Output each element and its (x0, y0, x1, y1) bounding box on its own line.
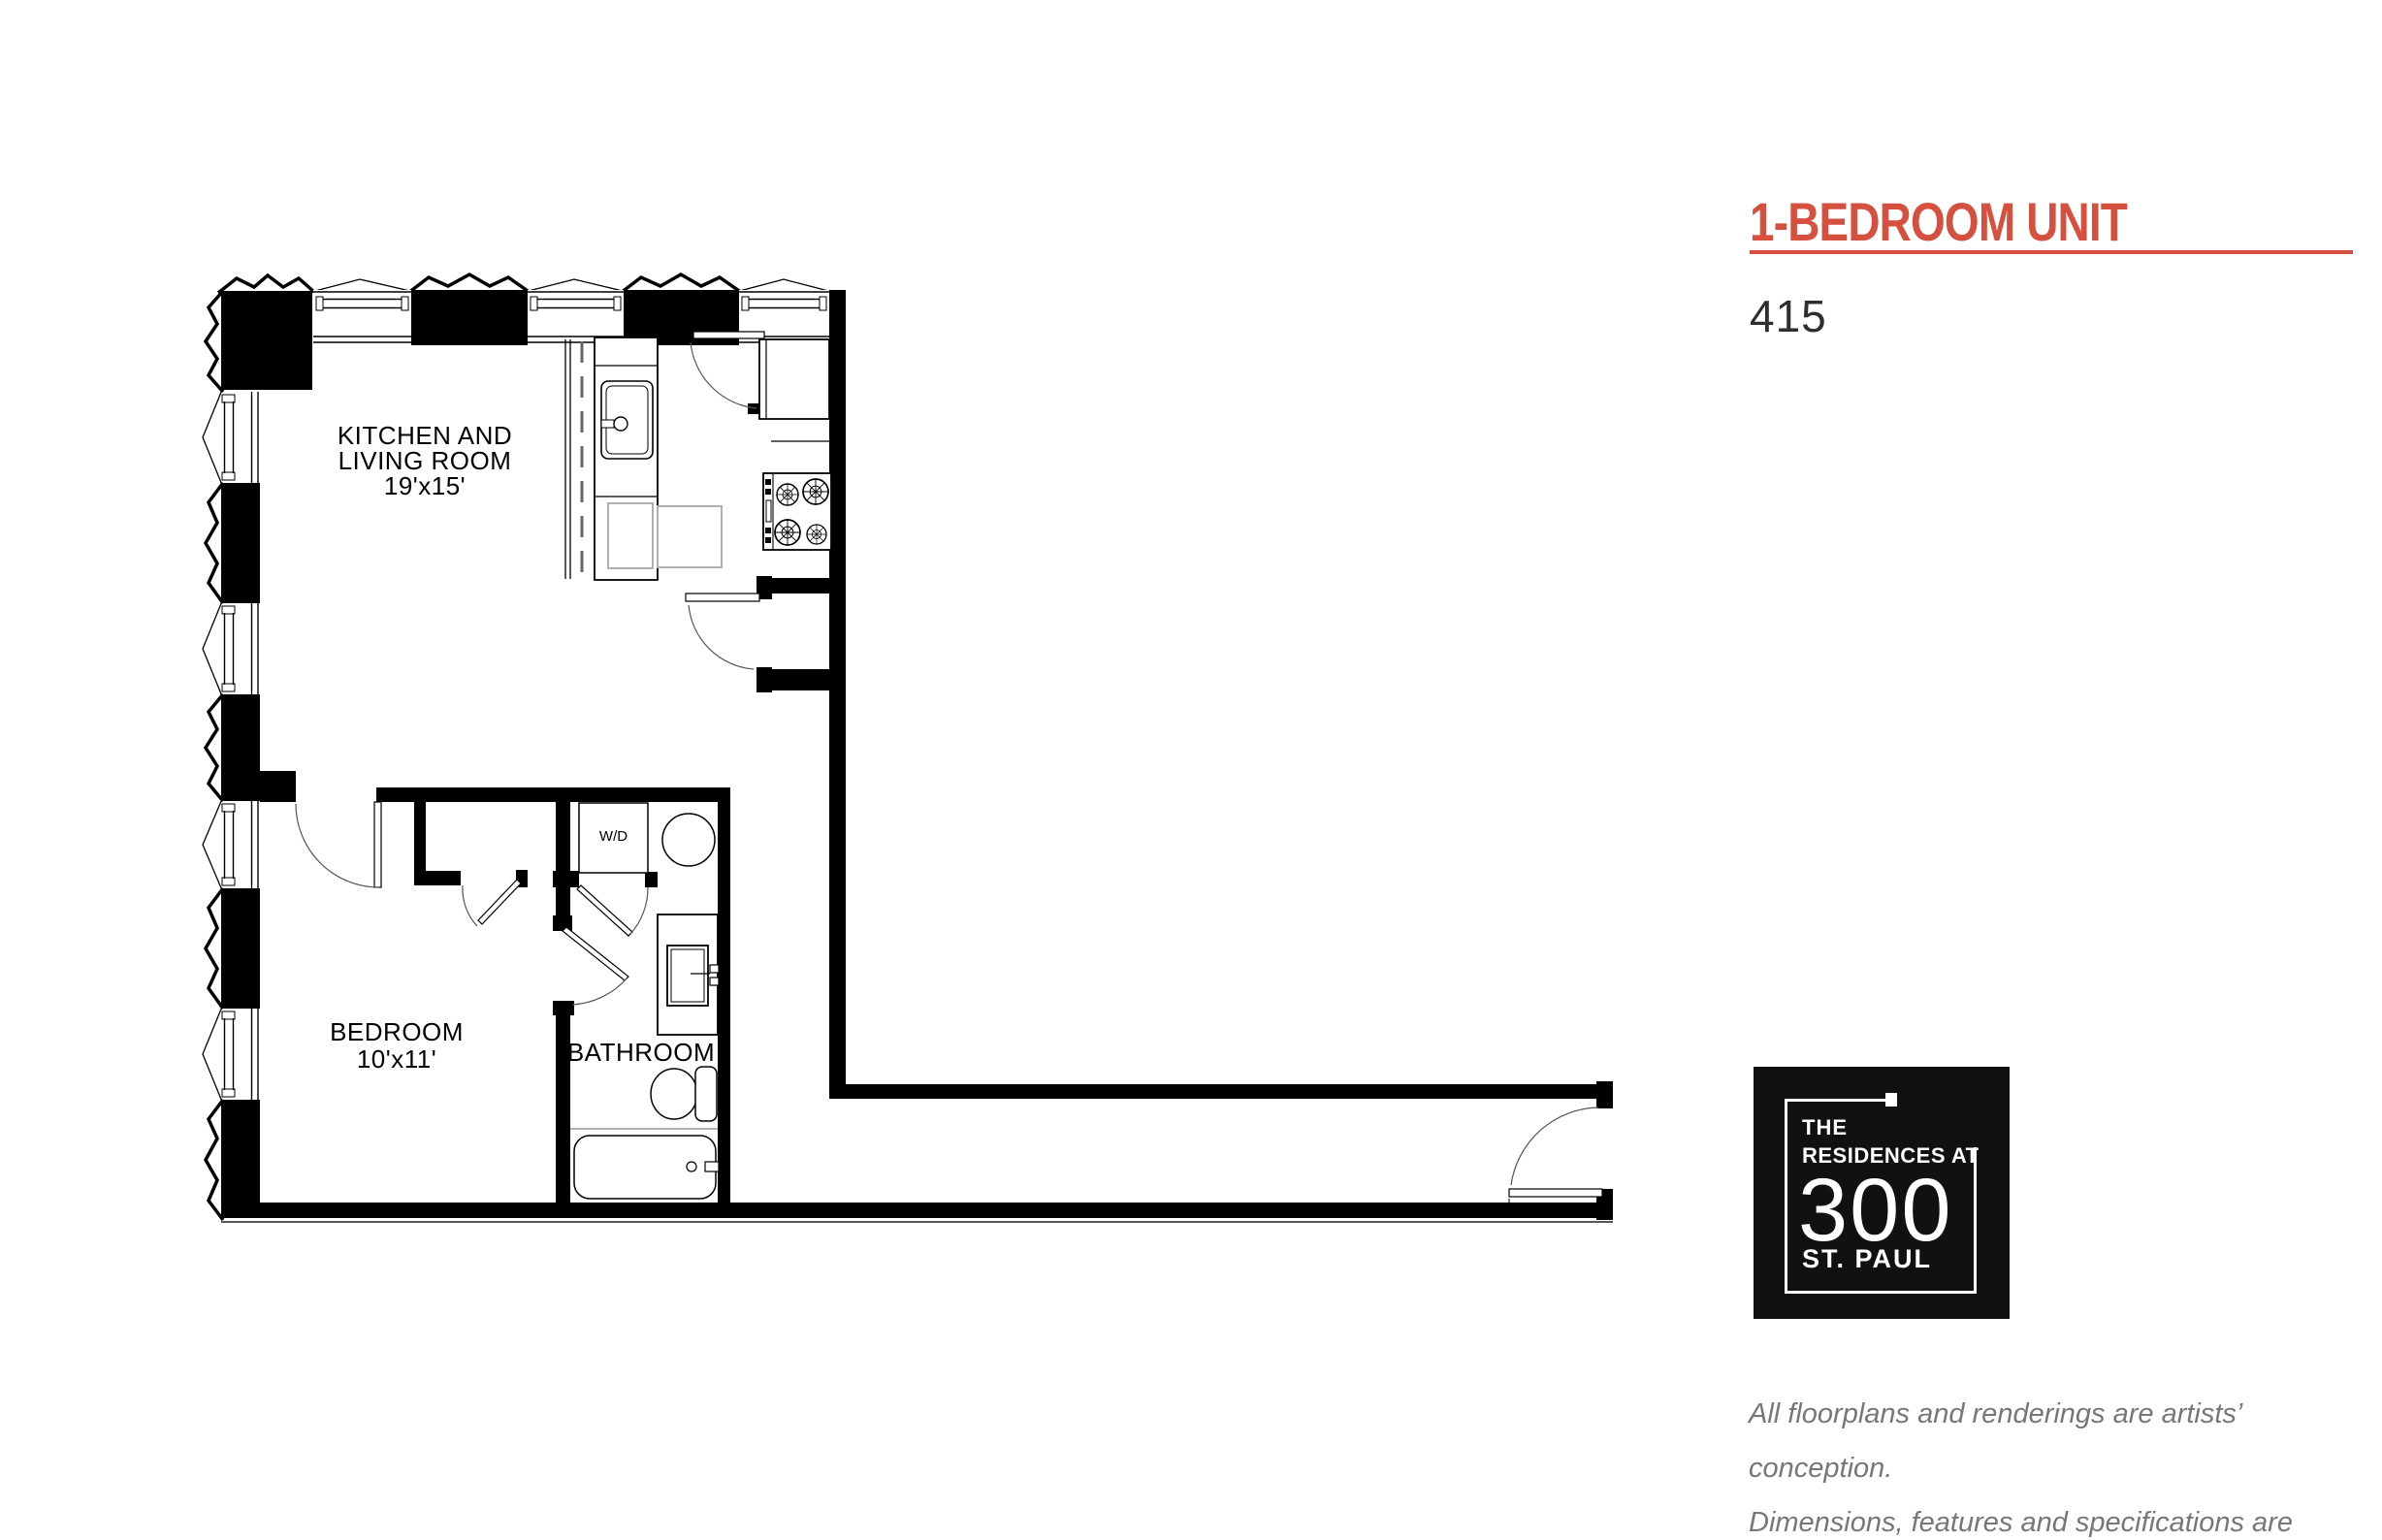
break-lines (203, 274, 832, 1220)
room-name-line: BATHROOM (534, 1040, 748, 1065)
logo-frame-right (1974, 1147, 1977, 1294)
disclaimer-text: All floorplans and renderings are artist… (1749, 1387, 2369, 1540)
room-dimensions: 10'x11' (290, 1045, 503, 1073)
windows (222, 290, 829, 1100)
logo-frame-left (1785, 1099, 1787, 1293)
kitchen-fixtures (565, 337, 831, 580)
logo-line-the: THE (1802, 1115, 1848, 1140)
washer-dryer-label: W/D (579, 828, 648, 845)
logo-frame-bottom (1785, 1291, 1977, 1294)
unit-number: 415 (1750, 290, 1827, 342)
logo-line-300: 300 (1798, 1166, 1953, 1255)
kitchen-living-room-label: KITCHEN AND LIVING ROOM 19'x15' (318, 423, 531, 498)
title-underline (1750, 250, 2353, 254)
room-name-line: KITCHEN AND (318, 423, 531, 448)
logo-frame-block (1885, 1093, 1897, 1107)
room-name-line: LIVING ROOM (318, 448, 531, 473)
residences-300-st-paul-logo: THE RESIDENCES AT 300 ST. PAUL (1754, 1067, 2010, 1319)
disclaimer-line: All floorplans and renderings are artist… (1749, 1387, 2369, 1495)
page-title: 1-BEDROOM UNIT (1750, 190, 2127, 253)
bedroom-label: BEDROOM 10'x11' (290, 1018, 503, 1073)
floorplan-sheet: KITCHEN AND LIVING ROOM 19'x15' BEDROOM … (0, 0, 2382, 1540)
logo-line-st-paul: ST. PAUL (1802, 1244, 1932, 1274)
bathroom-label: BATHROOM (534, 1040, 748, 1065)
disclaimer-line: Dimensions, features and specifications … (1749, 1495, 2369, 1540)
room-name-line: BEDROOM (290, 1018, 503, 1045)
room-dimensions: 19'x15' (318, 473, 531, 498)
logo-frame-top (1785, 1099, 1887, 1102)
